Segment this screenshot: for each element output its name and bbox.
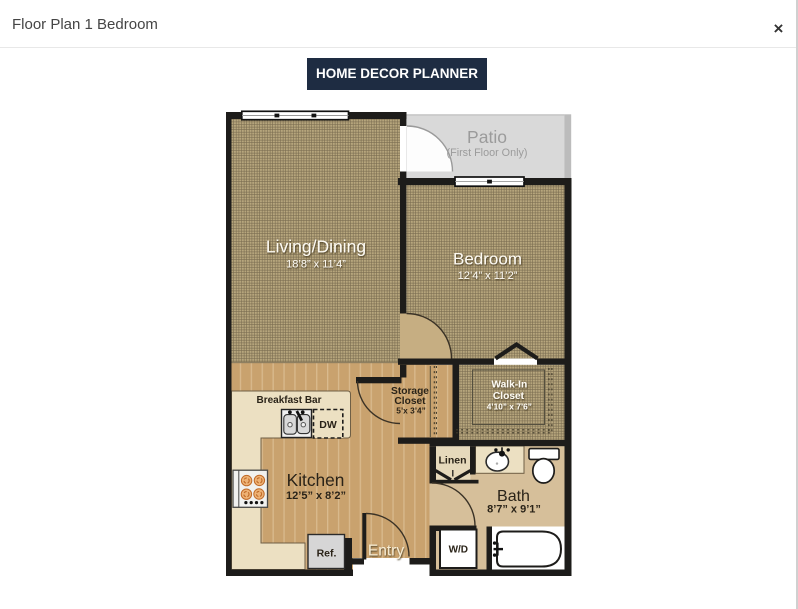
svg-text:12’4” x 11’2”: 12’4” x 11’2” — [458, 270, 518, 282]
svg-text:Living/Dining: Living/Dining — [266, 237, 366, 257]
svg-text:(First Floor Only): (First Floor Only) — [447, 147, 528, 159]
svg-text:Closet: Closet — [493, 391, 525, 402]
svg-text:12’5” x 8’2”: 12’5” x 8’2” — [286, 490, 346, 502]
svg-text:4’10” x 7’6”: 4’10” x 7’6” — [487, 401, 532, 411]
svg-text:18’8” x 11’4”: 18’8” x 11’4” — [286, 259, 346, 271]
svg-text:Walk-In: Walk-In — [491, 380, 527, 391]
svg-text:Entry: Entry — [368, 542, 404, 559]
svg-text:DW: DW — [319, 419, 337, 431]
svg-text:W/D: W/D — [449, 545, 468, 556]
svg-text:Patio: Patio — [467, 127, 507, 147]
svg-text:8’7” x 9’1”: 8’7” x 9’1” — [487, 504, 541, 516]
svg-text:Kitchen: Kitchen — [287, 470, 345, 490]
svg-text:Bath: Bath — [497, 488, 530, 505]
svg-text:Breakfast Bar: Breakfast Bar — [256, 395, 321, 406]
svg-text:Ref.: Ref. — [317, 548, 337, 560]
svg-text:5’x 3’4”: 5’x 3’4” — [396, 406, 426, 416]
svg-text:Linen: Linen — [439, 455, 467, 467]
svg-text:Bedroom: Bedroom — [453, 250, 522, 269]
